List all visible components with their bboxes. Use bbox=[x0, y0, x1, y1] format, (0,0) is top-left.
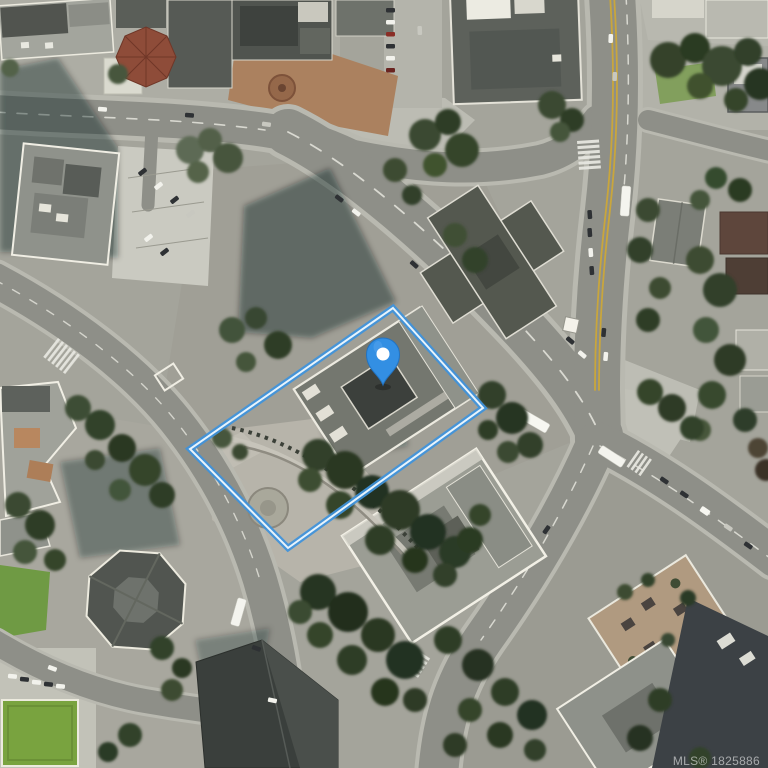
mls-watermark: MLS® 1825886 bbox=[673, 754, 760, 768]
pin-center-dot bbox=[377, 348, 390, 361]
satellite-map: MLS® 1825886 bbox=[0, 0, 768, 768]
aerial-photo: MLS® 1825886 bbox=[0, 0, 768, 768]
